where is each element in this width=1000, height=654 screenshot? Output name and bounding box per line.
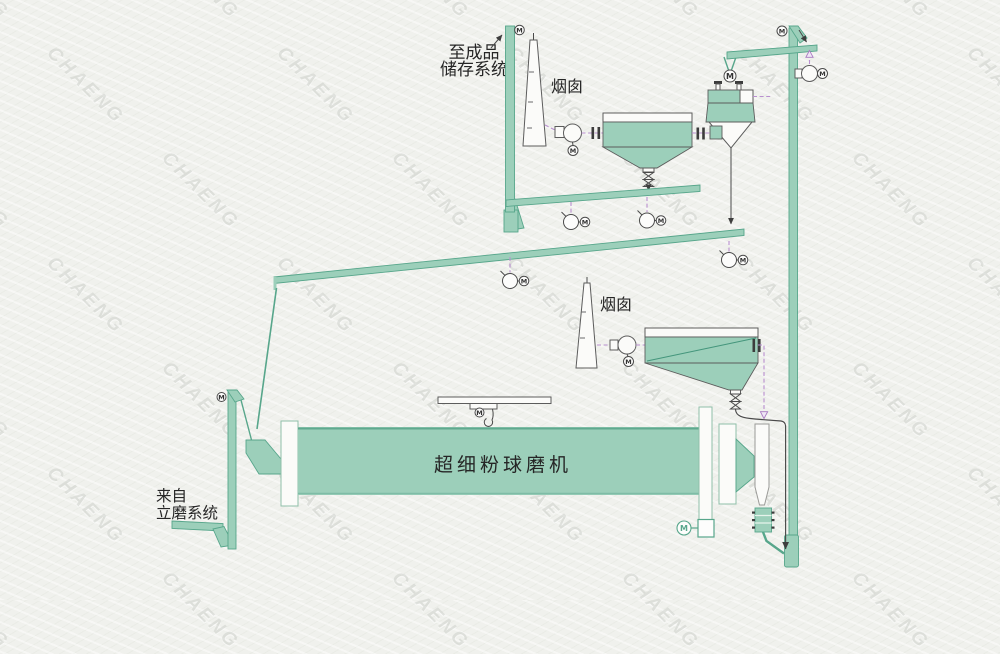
dc2-hopper xyxy=(645,363,758,390)
hoist-trolley xyxy=(470,404,497,410)
from-mill-line1: 来自 xyxy=(156,487,187,505)
chimney-2 xyxy=(576,277,597,368)
mill-feed-system: M xyxy=(172,390,252,549)
motor-letter: M xyxy=(819,70,825,78)
label-from-vertical-mill: 来自 立磨系统 xyxy=(156,487,218,522)
return-chute-to-mill xyxy=(257,288,277,429)
conveyor-top xyxy=(727,45,817,59)
motor-letter: M xyxy=(570,147,576,155)
from-mill-line2: 立磨系统 xyxy=(156,504,218,522)
feeder-body xyxy=(755,508,772,532)
blower-icon xyxy=(640,213,655,228)
motor-letter: M xyxy=(476,409,482,417)
mill-girth-gear xyxy=(699,407,712,521)
motor-letter: M xyxy=(218,393,224,401)
dedusting-duct xyxy=(758,345,764,418)
motor-letter: M xyxy=(521,277,527,285)
elevator-boot xyxy=(785,535,799,567)
label-to-storage: 至成品 储存系统 xyxy=(440,35,508,79)
mill-feed-chute xyxy=(246,440,281,474)
separator-body xyxy=(706,103,755,122)
mill-outlet-bearing xyxy=(719,424,736,504)
overhead-hoist: M xyxy=(438,397,551,426)
motor-letter: M xyxy=(625,358,631,366)
spout-to-mill-chute xyxy=(241,400,252,440)
conveyor-blower-3: M xyxy=(501,257,529,289)
feeder-chute-to-elevator xyxy=(763,532,784,554)
dust-collector-2 xyxy=(645,328,758,409)
fan-outlet xyxy=(555,127,564,138)
label-ball-mill: 超细粉球磨机 xyxy=(434,454,572,476)
dc1-top xyxy=(603,113,692,122)
fan-icon xyxy=(564,124,582,142)
fan-icon xyxy=(618,336,636,354)
dc2-neck xyxy=(731,390,741,394)
blower-icon xyxy=(722,253,737,268)
blower-icon xyxy=(503,274,518,289)
motor-letter: M xyxy=(726,72,734,81)
rotary-valve-icon xyxy=(731,394,741,402)
dc1-neck xyxy=(643,168,654,172)
separator-inlet xyxy=(710,126,722,139)
rotary-valve-icon xyxy=(644,173,654,180)
chimney-stack xyxy=(576,283,597,368)
motor-letter: M xyxy=(582,218,588,226)
motor-letter: M xyxy=(516,26,522,34)
separator-classifier: M xyxy=(706,57,771,224)
rotary-valve-icon xyxy=(731,402,741,410)
process-flow-diagram: 至成品 储存系统 M 烟囱 M xyxy=(0,0,1000,600)
mill-discharge-cone xyxy=(736,439,754,492)
gearbox xyxy=(698,520,714,538)
induced-draft-fan-1: M xyxy=(545,124,582,156)
rotary-feeder xyxy=(752,508,775,532)
label-chimney-1: 烟囱 xyxy=(551,78,583,96)
bucket-elevator-circulation: M xyxy=(777,26,807,567)
mill-main-drive: M xyxy=(677,520,714,538)
hook-icon xyxy=(484,409,493,426)
conveyor-fines xyxy=(506,185,700,207)
elevator-leg xyxy=(228,392,236,549)
discharge-hopper xyxy=(755,424,769,505)
fan-icon xyxy=(802,66,818,82)
elevator-leg xyxy=(789,28,798,540)
chimney-stack xyxy=(523,40,546,146)
mill-inlet-trunnion xyxy=(281,421,298,506)
blower-icon xyxy=(564,215,579,230)
to-storage-line2: 储存系统 xyxy=(440,60,508,79)
dc1-body xyxy=(603,122,692,147)
chimney-1 xyxy=(523,33,546,146)
elevator-leg xyxy=(506,26,515,212)
rotary-valve-icon xyxy=(644,180,654,187)
airflow-duct xyxy=(545,125,555,130)
conveyor-blower-1: M xyxy=(562,202,590,230)
conveyor-blower-2: M xyxy=(638,197,666,228)
vent-fan-top-right: M xyxy=(795,51,828,82)
motor-letter: M xyxy=(658,217,664,225)
fan-outlet xyxy=(795,69,802,78)
induced-draft-fan-2: M xyxy=(597,336,636,367)
dc1-hopper xyxy=(603,147,692,168)
motor-letter: M xyxy=(680,524,688,533)
ball-mill: 超细粉球磨机 xyxy=(298,427,699,495)
elevator-boot xyxy=(504,210,518,232)
motor-letter: M xyxy=(779,28,785,36)
dust-collector-1 xyxy=(603,113,692,191)
label-chimney-2: 烟囱 xyxy=(600,296,632,314)
separator-outlet-box xyxy=(740,90,753,103)
conveyor-blower-4: M xyxy=(720,241,748,268)
hoist-rail xyxy=(438,397,551,404)
dc2-top xyxy=(645,328,758,337)
motor-letter: M xyxy=(740,256,746,264)
fan-outlet xyxy=(610,340,618,350)
